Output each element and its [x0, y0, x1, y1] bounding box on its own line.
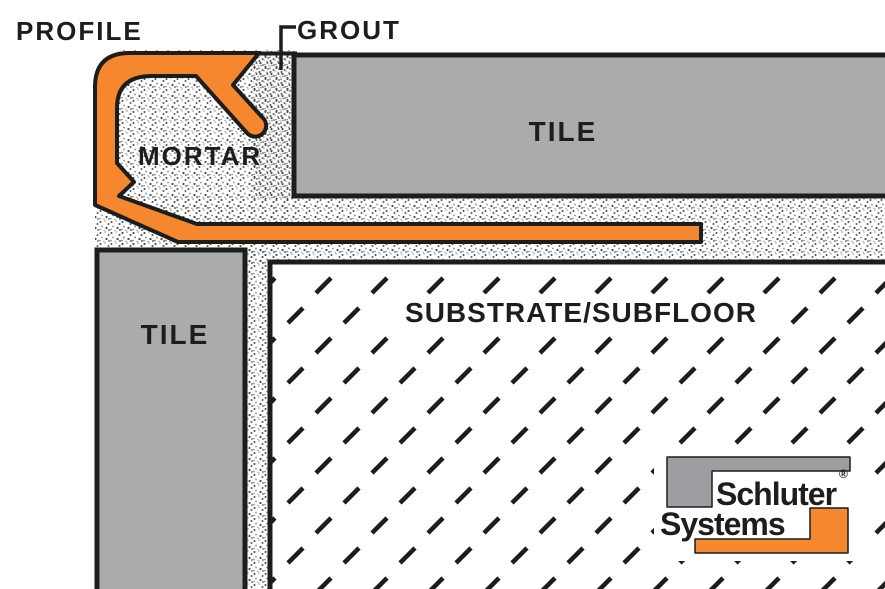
- tile-left-shape: [97, 250, 245, 589]
- grout-label: GROUT: [297, 17, 401, 43]
- substrate-label: SUBSTRATE/SUBFLOOR: [381, 299, 781, 327]
- tile-edge-profile-diagram: PROFILE GROUT MORTAR TILE TILE SUBSTRATE…: [0, 0, 885, 589]
- registered-trademark-icon: ®: [839, 468, 848, 480]
- mortar-label: MORTAR: [138, 143, 262, 169]
- tile-left-label: TILE: [125, 321, 225, 349]
- tile-top-label: TILE: [513, 118, 613, 146]
- logo-brand-line2: Systems: [660, 508, 785, 540]
- profile-label: PROFILE: [16, 18, 143, 44]
